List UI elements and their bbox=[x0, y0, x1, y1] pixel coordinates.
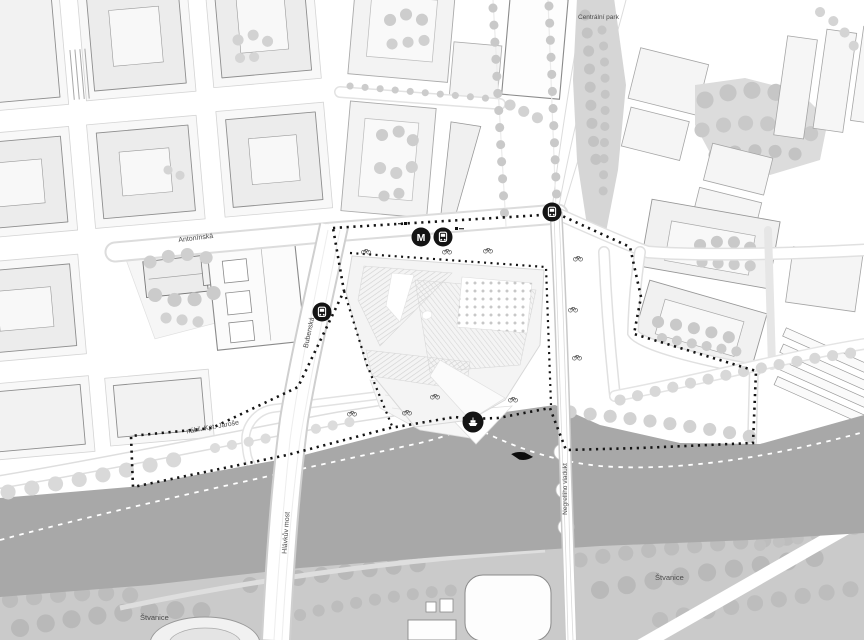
site-plan-map: M Centrální park Antonínská Bubenská náb… bbox=[0, 0, 864, 640]
label-stvanice-west: Štvanice bbox=[140, 613, 169, 622]
city-block bbox=[0, 376, 95, 462]
island-building bbox=[440, 599, 453, 612]
tram-icon bbox=[543, 203, 562, 222]
island-building bbox=[426, 602, 436, 612]
island-building bbox=[408, 620, 456, 640]
city-block bbox=[76, 0, 196, 101]
ferry-icon bbox=[463, 412, 484, 433]
label-negrelliho-viadukt: Negrelliho viadukt bbox=[562, 463, 569, 515]
city-block bbox=[0, 254, 86, 364]
label-stvanice-east: Štvanice bbox=[655, 573, 684, 582]
city-block bbox=[105, 369, 215, 446]
label-central-park: Centrální park bbox=[578, 14, 626, 44]
city-block bbox=[216, 102, 333, 217]
metro-label: M bbox=[417, 232, 426, 244]
palace-building bbox=[207, 242, 305, 351]
city-block bbox=[0, 126, 78, 239]
tram-icon bbox=[434, 228, 453, 247]
island-building bbox=[465, 575, 551, 640]
metro-icon: M bbox=[412, 228, 431, 247]
city-block bbox=[0, 0, 69, 114]
station-building bbox=[502, 0, 568, 99]
city-block bbox=[203, 0, 321, 88]
map-canvas: M Centrální park Antonínská Bubenská náb… bbox=[0, 0, 864, 640]
central-park-label-text: Centrální park bbox=[578, 14, 624, 22]
city-block bbox=[87, 115, 206, 228]
